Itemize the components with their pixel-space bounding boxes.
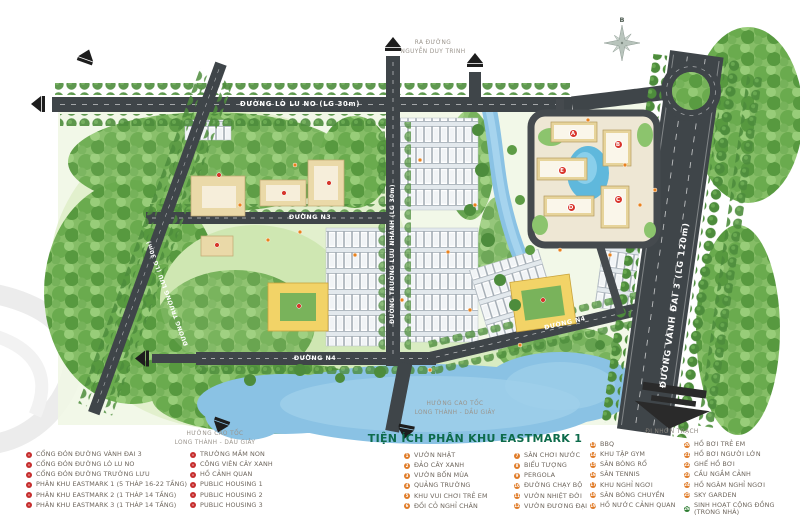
legend-item: CỔNG ĐÓN ĐƯỜNG VÀNH ĐAI 3 — [26, 451, 187, 458]
legend-item: 20 HỒ BƠI TRẺ EM — [684, 441, 775, 448]
legend-item: 17 KHU NGHỈ NGƠI — [590, 482, 675, 489]
legend-item-label: CỔNG ĐÓN ĐƯỜNG VÀNH ĐAI 3 — [36, 451, 142, 458]
legend-item: 16 SÂN TENNIS — [590, 471, 675, 478]
legend-marker-icon: 1 — [404, 453, 410, 459]
road-label-n3: ĐƯỜNG N3 — [255, 214, 365, 221]
legend-marker-icon: 24 — [684, 482, 690, 488]
legend-marker-icon: 5 — [404, 493, 410, 499]
legend-marker-icon: 15 — [590, 462, 596, 468]
legend-item-label: BIỂU TƯỢNG — [524, 462, 567, 469]
legend-marker-icon — [190, 502, 196, 508]
direction-cao-toc-south: HƯỚNG CAO TỐC LONG THÀNH - DẦU GIÂY — [385, 400, 525, 419]
legend-item: 19 HỒ NƯỚC CẢNH QUAN — [590, 502, 675, 509]
legend-marker-icon: 8 — [514, 463, 520, 469]
legend-item-label: SINH HOẠT CỘNG ĐỒNG(TRONG NHÀ) — [694, 502, 775, 515]
legend-item-label: PERGOLA — [524, 472, 555, 479]
legend-item: 26 SINH HOẠT CỘNG ĐỒNG(TRONG NHÀ) — [684, 502, 775, 515]
legend-item-label: PHÂN KHU EASTMARK 1 (5 THÁP 16-22 TẦNG) — [36, 481, 187, 488]
legend-item: 14 KHU TẬP GYM — [590, 451, 675, 458]
legend-item: 7 SÂN CHƠI NƯỚC — [514, 452, 587, 459]
legend-item-label: HỒ BƠI TRẺ EM — [694, 441, 745, 448]
legend-marker-icon: 16 — [590, 472, 596, 478]
legend-item: 22 GHẾ HỒ BƠI — [684, 461, 775, 468]
road-label-truong-luu-nhanh: ĐƯỜNG TRƯỜNG LƯU NHÁNH (LG 30m) — [390, 169, 396, 339]
legend-item: 1 VƯỜN NHẬT — [404, 452, 488, 459]
legend-marker-icon — [26, 502, 32, 508]
compass-north-label: B — [615, 16, 629, 24]
legend-item-label: CẦU NGẮM CẢNH — [694, 471, 751, 478]
legend-item-label: KHU VUI CHƠI TRẺ EM — [414, 493, 488, 500]
direction-nguyen-duy-trinh: RA ĐƯỜNG NGUYỄN DUY TRINH — [363, 39, 503, 58]
legend-item: PUBLIC HOUSING 1 — [190, 481, 273, 488]
legend-marker-icon: 3 — [404, 473, 410, 479]
legend-item-label: SÂN BÓNG CHUYỀN — [600, 492, 665, 499]
legend-marker-icon: 11 — [514, 493, 520, 499]
legend-item-label: PUBLIC HOUSING 2 — [200, 492, 263, 499]
legend-item: 9 PERGOLA — [514, 472, 587, 479]
legend-item: 15 SÂN BÓNG RỔ — [590, 461, 675, 468]
legend-marker-icon — [26, 472, 32, 478]
legend-marker-icon — [26, 462, 32, 468]
legend-item-label: SÂN TENNIS — [600, 471, 640, 478]
legend-marker-icon: 7 — [514, 453, 520, 459]
legend-item: PUBLIC HOUSING 3 — [190, 502, 273, 509]
legend-column-4: 7 SÂN CHƠI NƯỚC 8 BIỂU TƯỢNG 9 PERGOLA 1… — [514, 452, 587, 513]
legend-item-label: QUẢNG TRƯỜNG — [414, 482, 470, 489]
legend-item: PHÂN KHU EASTMARK 3 (1 THÁP 14 TẦNG) — [26, 502, 187, 509]
legend-column-3: 1 VƯỜN NHẬT 2 ĐẢO CÂY XANH 3 VƯỜN BỐN MÙ… — [404, 452, 488, 513]
legend-marker-icon: 17 — [590, 482, 596, 488]
direction-line2: NGUYỄN DUY TRINH — [363, 48, 503, 57]
legend-item-label: KHU NGHỈ NGƠI — [600, 482, 653, 489]
legend-item-label: GHẾ HỒ BƠI — [694, 461, 735, 468]
legend-item-label: VƯỜN BỐN MÙA — [414, 472, 469, 479]
legend-item: 21 HỒ BƠI NGƯỜI LỚN — [684, 451, 775, 458]
direction-cao-toc-west: HƯỚNG CAO TỐC LONG THÀNH - DẦU GIÂY — [145, 430, 285, 449]
legend-item: CỔNG ĐÓN ĐƯỜNG LÒ LU NO — [26, 461, 187, 468]
legend-marker-icon: 10 — [514, 483, 520, 489]
legend-column-5: 13 BBQ 14 KHU TẬP GYM 15 SÂN BÓNG RỔ 16 … — [590, 441, 675, 512]
road-label-n4: ĐƯỜNG N4 — [260, 355, 370, 362]
legend-item: 5 KHU VUI CHƠI TRẺ EM — [404, 493, 488, 500]
legend-item-label: ĐƯỜNG CHẠY BỘ — [524, 482, 582, 489]
direction-line1: RA ĐƯỜNG — [363, 39, 503, 48]
legend-item-label: HỒ CẢNH QUAN — [200, 471, 252, 478]
legend-item-label: PHÂN KHU EASTMARK 2 (1 THÁP 14 TẦNG) — [36, 492, 176, 499]
legend-item: 13 BBQ — [590, 441, 675, 448]
legend-item-label: SKY GARDEN — [694, 492, 736, 499]
tower-badge-a: A — [569, 129, 578, 138]
legend-item: 10 ĐƯỜNG CHẠY BỘ — [514, 482, 587, 489]
legend-item: 18 SÂN BÓNG CHUYỀN — [590, 492, 675, 499]
legend-item-label: SÂN CHƠI NƯỚC — [524, 452, 580, 459]
legend-marker-icon: 12 — [514, 503, 520, 509]
legend-marker-icon: 22 — [684, 462, 690, 468]
legend-item-label: CỔNG ĐÓN ĐƯỜNG TRƯỜNG LƯU — [36, 471, 150, 478]
legend-marker-icon — [190, 492, 196, 498]
direction-line1: HƯỚNG CAO TỐC — [385, 400, 525, 409]
legend-item-label: CÔNG VIÊN CÂY XANH — [200, 461, 273, 468]
legend-marker-icon: 19 — [590, 503, 596, 509]
legend-item: 12 VƯỜN ĐƯƠNG ĐẠI — [514, 503, 587, 510]
legend-item: HỒ CẢNH QUAN — [190, 471, 273, 478]
legend-item-label: HỒ BƠI NGƯỜI LỚN — [694, 451, 761, 458]
legend-item: TRƯỜNG MẦM NON — [190, 451, 273, 458]
legend-marker-icon: 23 — [684, 472, 690, 478]
legend-marker-icon: 25 — [684, 492, 690, 498]
legend-marker-icon: 4 — [404, 483, 410, 489]
legend-item-label: VƯỜN ĐƯƠNG ĐẠI — [524, 503, 587, 510]
legend-item-label: HỒ NGÂM NGHỈ NGƠI — [694, 482, 765, 489]
legend-item-label: PHÂN KHU EASTMARK 3 (1 THÁP 14 TẦNG) — [36, 502, 176, 509]
legend-title: TIỆN ÍCH PHÂN KHU EASTMARK 1 — [335, 432, 615, 445]
legend-column-1: CỔNG ĐÓN ĐƯỜNG VÀNH ĐAI 3 CỔNG ĐÓN ĐƯỜNG… — [26, 451, 187, 512]
legend-item: 11 VƯỜN NHIỆT ĐỚI — [514, 493, 587, 500]
legend-item: 25 SKY GARDEN — [684, 492, 775, 499]
legend-item: 2 ĐẢO CÂY XANH — [404, 462, 488, 469]
legend-marker-icon: 2 — [404, 463, 410, 469]
legend-item: 6 ĐỒI CỎ NGHỈ CHÂN — [404, 503, 488, 510]
tower-badge-c: C — [614, 195, 623, 204]
legend-item: PHÂN KHU EASTMARK 2 (1 THÁP 14 TẦNG) — [26, 492, 187, 499]
legend-item-label: CỔNG ĐÓN ĐƯỜNG LÒ LU NO — [36, 461, 135, 468]
legend-marker-icon: 21 — [684, 452, 690, 458]
legend-item-label: KHU TẬP GYM — [600, 451, 645, 458]
legend-item-label: TRƯỜNG MẦM NON — [200, 451, 265, 458]
legend-column-2: TRƯỜNG MẦM NON CÔNG VIÊN CÂY XANH HỒ CẢN… — [190, 451, 273, 512]
legend-marker-icon — [190, 462, 196, 468]
legend-item-label: ĐỒI CỎ NGHỈ CHÂN — [414, 503, 478, 510]
tower-badge-b: B — [614, 140, 623, 149]
legend-marker-icon — [26, 492, 32, 498]
legend-item-label: ĐẢO CÂY XANH — [414, 462, 464, 469]
direction-line2: LONG THÀNH - DẦU GIÂY — [385, 409, 525, 418]
direction-nhon-trach: ĐI NHƠN TRẠCH — [602, 428, 742, 437]
tower-badge-e: E — [558, 166, 567, 175]
legend-marker-icon: 26 — [684, 506, 690, 512]
legend-item: 23 CẦU NGẮM CẢNH — [684, 471, 775, 478]
legend-item: CỔNG ĐÓN ĐƯỜNG TRƯỜNG LƯU — [26, 471, 187, 478]
legend-item-label: HỒ NƯỚC CẢNH QUAN — [600, 502, 675, 509]
masterplan-page: ĐƯỜNG LÒ LU NO (LG 30m) ĐƯỜNG N3 ĐƯỜNG N… — [0, 0, 800, 515]
compass-icon — [604, 25, 640, 61]
legend-marker-icon — [26, 482, 32, 488]
tower-badge-d: D — [567, 203, 576, 212]
legend-item-label: PUBLIC HOUSING 3 — [200, 502, 263, 509]
legend-marker-icon — [190, 482, 196, 488]
legend-item-label: VƯỜN NHIỆT ĐỚI — [524, 493, 582, 500]
legend-marker-icon: 9 — [514, 473, 520, 479]
legend-item-label: VƯỜN NHẬT — [414, 452, 455, 459]
legend-item: PHÂN KHU EASTMARK 1 (5 THÁP 16-22 TẦNG) — [26, 481, 187, 488]
legend-item: PUBLIC HOUSING 2 — [190, 492, 273, 499]
legend-marker-icon: 18 — [590, 492, 596, 498]
legend-item: CÔNG VIÊN CÂY XANH — [190, 461, 273, 468]
legend-item-label: SÂN BÓNG RỔ — [600, 461, 647, 468]
legend-marker-icon — [190, 452, 196, 458]
legend-item: 3 VƯỜN BỐN MÙA — [404, 472, 488, 479]
legend-column-6: 20 HỒ BƠI TRẺ EM 21 HỒ BƠI NGƯỜI LỚN 22 … — [684, 441, 775, 515]
legend-item-label: BBQ — [600, 441, 614, 448]
direction-line1: HƯỚNG CAO TỐC — [145, 430, 285, 439]
legend-marker-icon — [26, 452, 32, 458]
legend-marker-icon — [190, 472, 196, 478]
legend-marker-icon: 20 — [684, 442, 690, 448]
legend-item: 8 BIỂU TƯỢNG — [514, 462, 587, 469]
legend-item: 24 HỒ NGÂM NGHỈ NGƠI — [684, 482, 775, 489]
legend-item-label: PUBLIC HOUSING 1 — [200, 481, 263, 488]
direction-line2: LONG THÀNH - DẦU GIÂY — [145, 439, 285, 448]
legend-marker-icon: 6 — [404, 503, 410, 509]
road-label-lo-lu: ĐƯỜNG LÒ LU NO (LG 30m) — [170, 100, 430, 108]
legend-marker-icon: 14 — [590, 452, 596, 458]
legend-marker-icon: 13 — [590, 442, 596, 448]
legend-item: 4 QUẢNG TRƯỜNG — [404, 482, 488, 489]
